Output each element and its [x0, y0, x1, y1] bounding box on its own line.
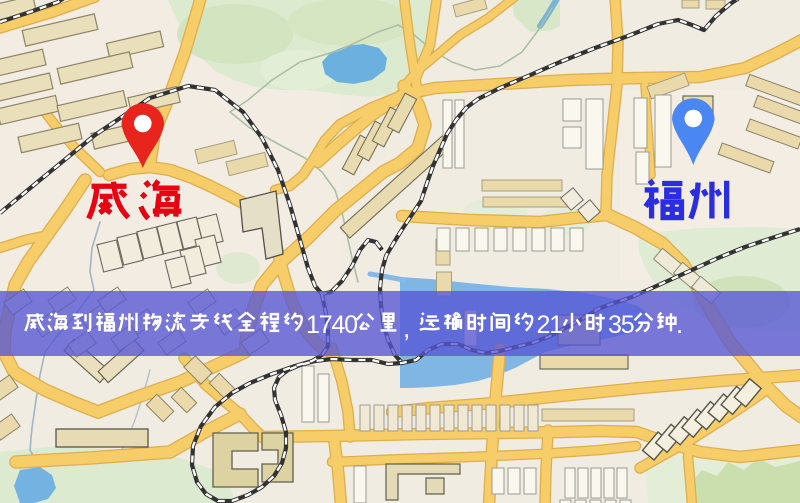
svg-text:35: 35 — [608, 311, 634, 339]
svg-text:1740: 1740 — [306, 311, 357, 339]
svg-text:.: . — [676, 309, 683, 339]
svg-text:,: , — [403, 313, 410, 343]
svg-text:21: 21 — [537, 311, 563, 339]
